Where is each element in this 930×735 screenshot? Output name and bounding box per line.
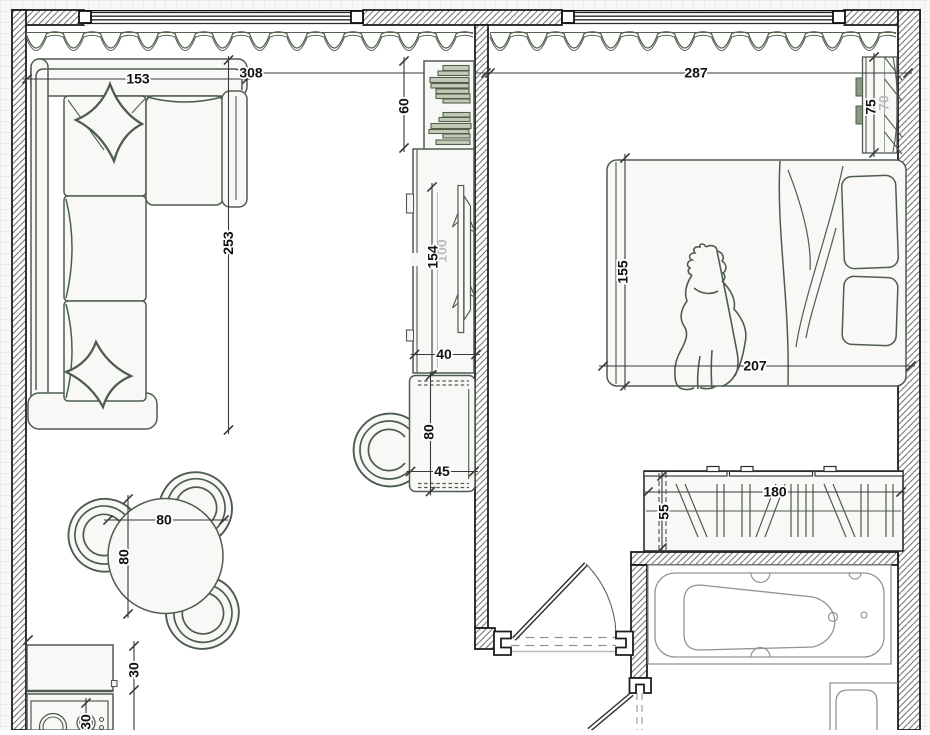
svg-text:40: 40 — [436, 346, 452, 362]
svg-text:253: 253 — [220, 231, 236, 255]
svg-text:80: 80 — [421, 424, 437, 440]
svg-text:30: 30 — [78, 714, 94, 730]
svg-text:60: 60 — [396, 98, 412, 114]
svg-text:80: 80 — [156, 512, 172, 528]
svg-text:153: 153 — [126, 71, 150, 87]
svg-text:45: 45 — [434, 463, 450, 479]
svg-text:154: 154 — [425, 245, 441, 269]
svg-text:207: 207 — [743, 358, 767, 374]
svg-text:180: 180 — [763, 484, 787, 500]
svg-text:30: 30 — [126, 662, 142, 678]
svg-text:308: 308 — [239, 65, 263, 81]
svg-text:287: 287 — [684, 65, 708, 81]
svg-text:80: 80 — [116, 549, 132, 565]
svg-text:75: 75 — [863, 99, 879, 115]
svg-text:155: 155 — [615, 260, 631, 284]
svg-text:55: 55 — [656, 504, 672, 520]
